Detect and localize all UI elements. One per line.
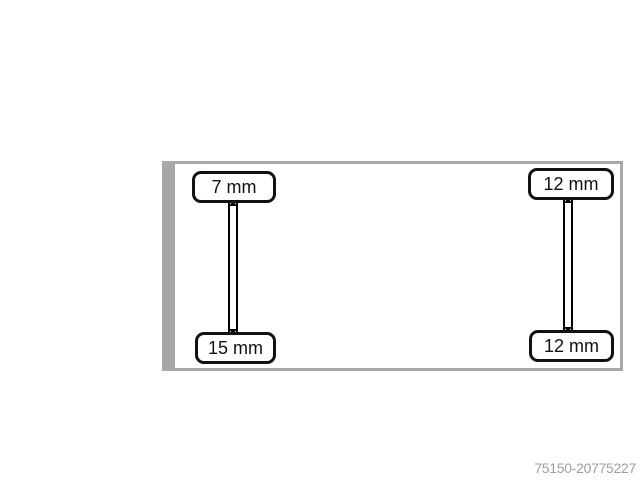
left-dimension-line (228, 202, 238, 333)
dimension-label-bottom-left: 15 mm (195, 332, 276, 364)
board-left-edge (165, 164, 175, 368)
right-dimension-line (563, 199, 573, 331)
dimension-label-top-left: 7 mm (192, 171, 276, 203)
dimension-label-top-right: 12 mm (528, 168, 614, 200)
diagram-canvas: 7 mm 12 mm 15 mm 12 mm 75150-20775227 (0, 0, 640, 480)
dimension-label-bottom-right: 12 mm (529, 330, 614, 362)
listing-id-text: 75150-20775227 (534, 460, 636, 476)
